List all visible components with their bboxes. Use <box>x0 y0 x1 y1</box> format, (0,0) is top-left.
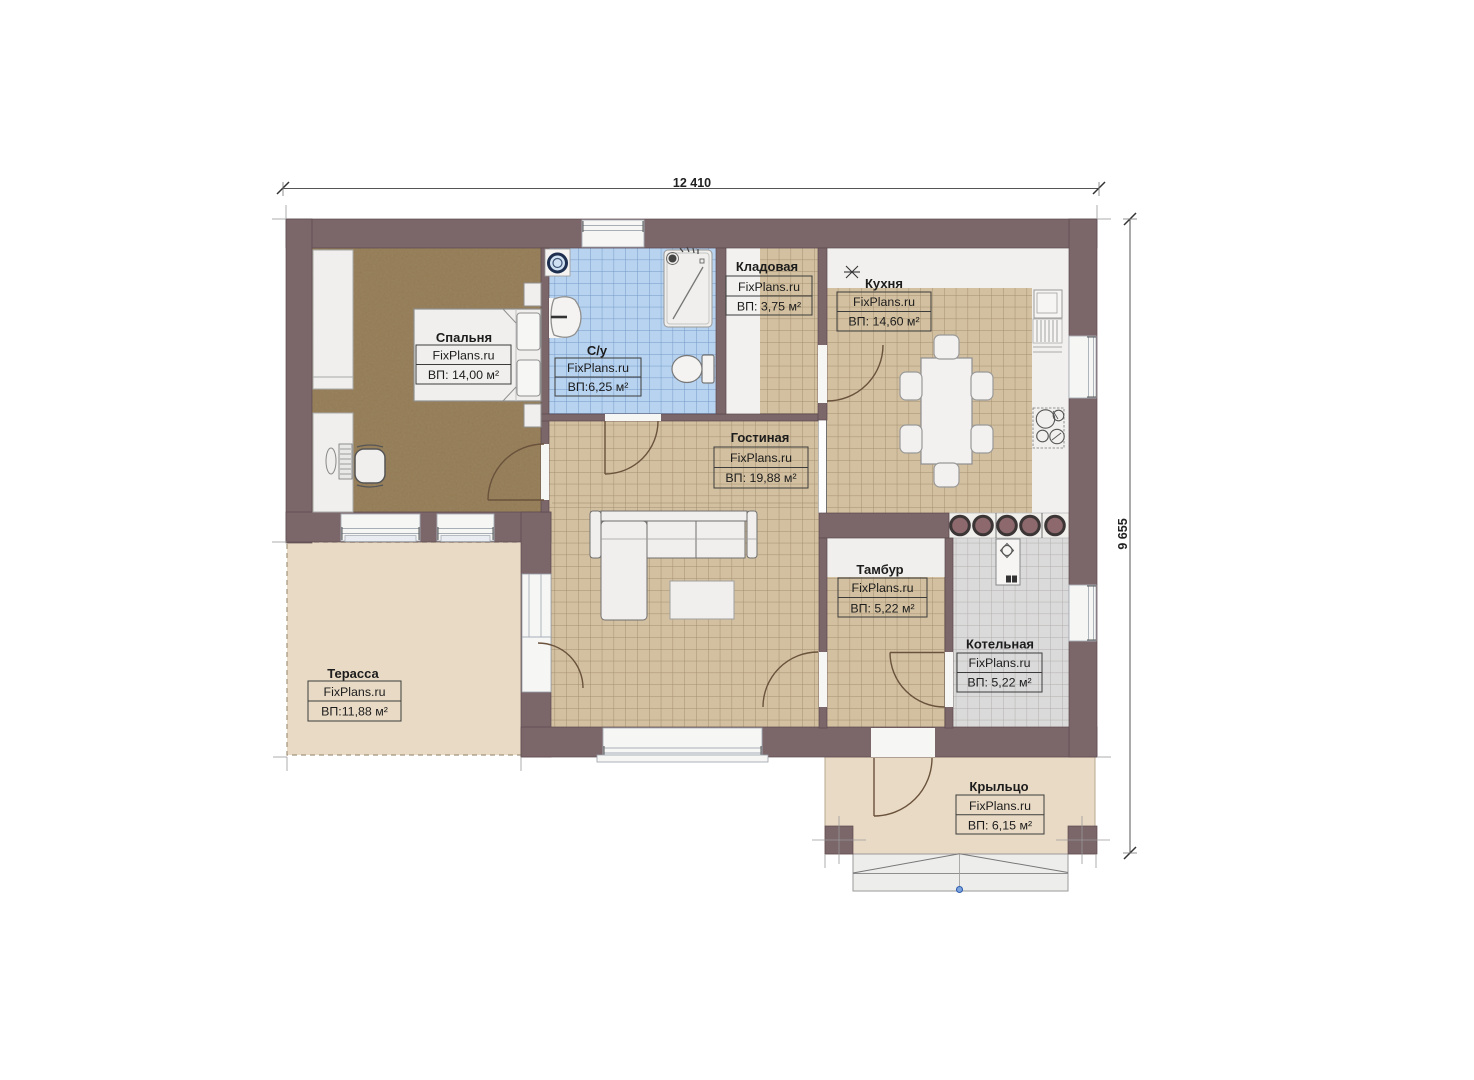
svg-text:ВП: 5,22 м²: ВП: 5,22 м² <box>967 676 1031 690</box>
svg-text:Крыльцо: Крыльцо <box>969 779 1028 794</box>
svg-text:ВП: 5,22 м²: ВП: 5,22 м² <box>850 602 914 616</box>
svg-text:Тамбур: Тамбур <box>856 562 903 577</box>
svg-text:ВП: 14,60 м²: ВП: 14,60 м² <box>848 315 919 329</box>
svg-text:ВП: 14,00 м²: ВП: 14,00 м² <box>428 368 499 382</box>
svg-text:ВП: 3,75 м²: ВП: 3,75 м² <box>737 300 801 314</box>
svg-text:FixPlans.ru: FixPlans.ru <box>567 361 629 375</box>
svg-text:Кухня: Кухня <box>865 276 903 291</box>
svg-text:Терасса: Терасса <box>327 666 379 681</box>
svg-text:FixPlans.ru: FixPlans.ru <box>969 799 1031 813</box>
svg-text:FixPlans.ru: FixPlans.ru <box>730 451 792 465</box>
svg-text:FixPlans.ru: FixPlans.ru <box>853 295 915 309</box>
svg-text:Гостиная: Гостиная <box>731 430 790 445</box>
svg-text:FixPlans.ru: FixPlans.ru <box>969 656 1031 670</box>
svg-text:Спальня: Спальня <box>436 330 492 345</box>
svg-text:9 655: 9 655 <box>1116 518 1130 549</box>
svg-text:FixPlans.ru: FixPlans.ru <box>433 349 495 363</box>
svg-text:ВП:11,88 м²: ВП:11,88 м² <box>321 705 388 719</box>
svg-text:FixPlans.ru: FixPlans.ru <box>852 581 914 595</box>
svg-text:FixPlans.ru: FixPlans.ru <box>738 280 800 294</box>
svg-text:12 410: 12 410 <box>673 176 711 190</box>
svg-text:FixPlans.ru: FixPlans.ru <box>324 685 386 699</box>
svg-text:ВП: 19,88 м²: ВП: 19,88 м² <box>725 471 796 485</box>
svg-text:С/у: С/у <box>587 343 608 358</box>
svg-text:ВП: 6,15 м²: ВП: 6,15 м² <box>968 819 1032 833</box>
svg-text:Котельная: Котельная <box>966 637 1034 652</box>
svg-text:ВП:6,25 м²: ВП:6,25 м² <box>568 380 629 394</box>
svg-text:Кладовая: Кладовая <box>736 259 798 274</box>
